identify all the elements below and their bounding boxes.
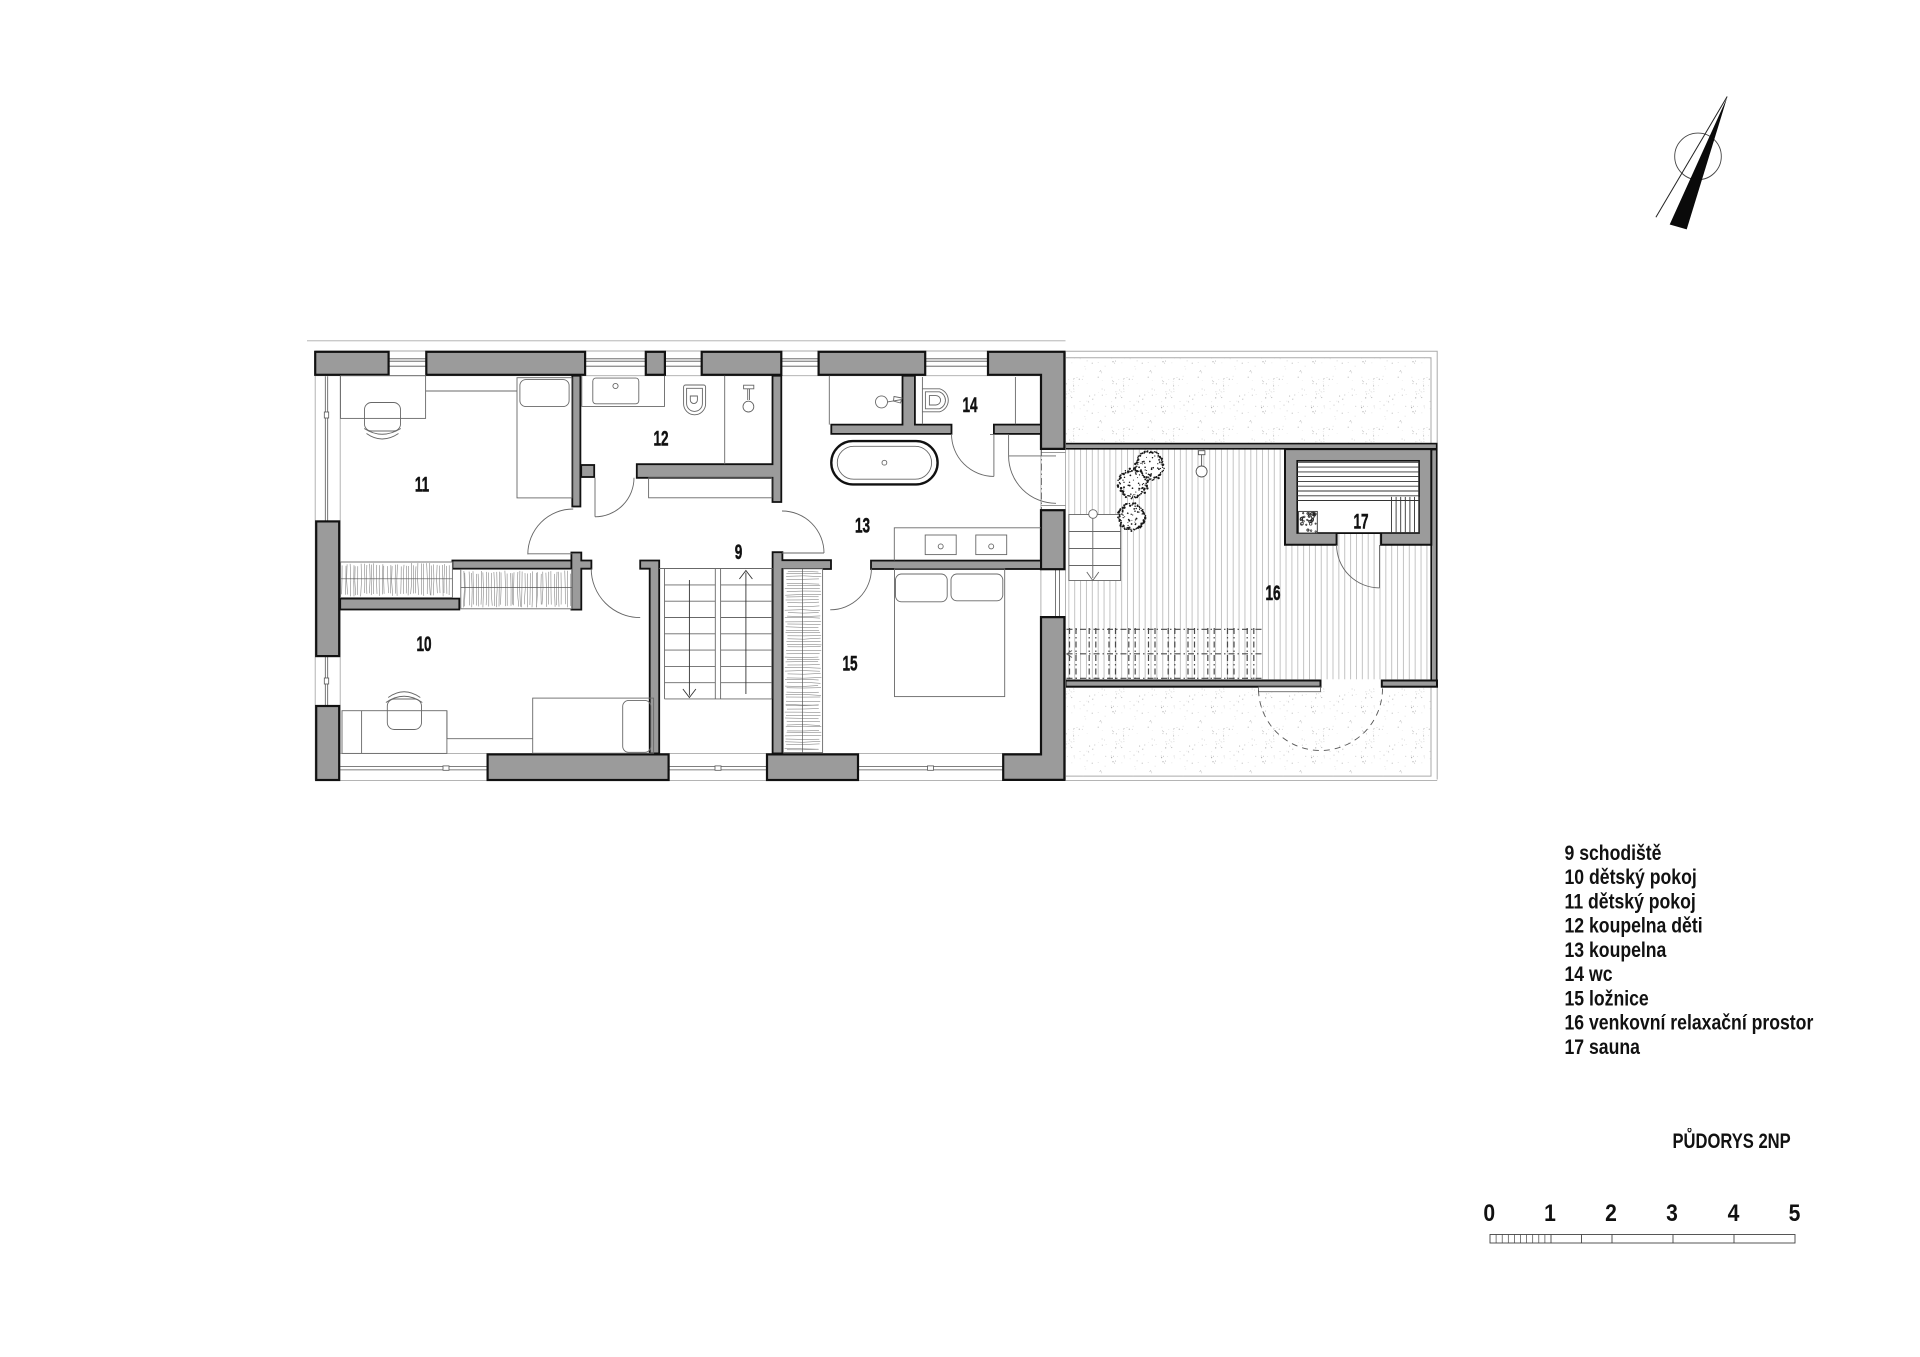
svg-text:11 dětský pokoj: 11 dětský pokoj <box>1565 890 1696 914</box>
svg-text:2: 2 <box>1605 1200 1617 1227</box>
svg-text:1: 1 <box>1544 1200 1556 1227</box>
svg-text:17 sauna: 17 sauna <box>1565 1035 1641 1059</box>
svg-text:14 wc: 14 wc <box>1565 963 1613 987</box>
svg-text:15 ložnice: 15 ložnice <box>1565 987 1649 1011</box>
svg-text:12: 12 <box>653 426 668 450</box>
svg-text:13 koupelna: 13 koupelna <box>1565 938 1667 962</box>
svg-text:PŮDORYS 2NP: PŮDORYS 2NP <box>1673 1128 1791 1154</box>
svg-text:5: 5 <box>1789 1200 1801 1227</box>
svg-text:14: 14 <box>962 393 977 417</box>
svg-text:9: 9 <box>735 540 743 564</box>
svg-text:13: 13 <box>855 513 870 537</box>
svg-text:3: 3 <box>1666 1200 1678 1227</box>
svg-text:17: 17 <box>1353 509 1368 533</box>
svg-text:10: 10 <box>416 632 431 656</box>
svg-text:16: 16 <box>1265 581 1280 605</box>
svg-text:4: 4 <box>1728 1200 1740 1227</box>
svg-text:10 dětský pokoj: 10 dětský pokoj <box>1565 866 1697 890</box>
svg-text:16 venkovní relaxační prostor: 16 venkovní relaxační prostor <box>1565 1011 1814 1035</box>
svg-text:9 schodiště: 9 schodiště <box>1565 842 1662 866</box>
svg-text:15: 15 <box>842 651 857 675</box>
svg-text:11: 11 <box>415 472 429 496</box>
svg-text:12 koupelna děti: 12 koupelna děti <box>1565 914 1703 938</box>
svg-text:0: 0 <box>1483 1200 1495 1227</box>
